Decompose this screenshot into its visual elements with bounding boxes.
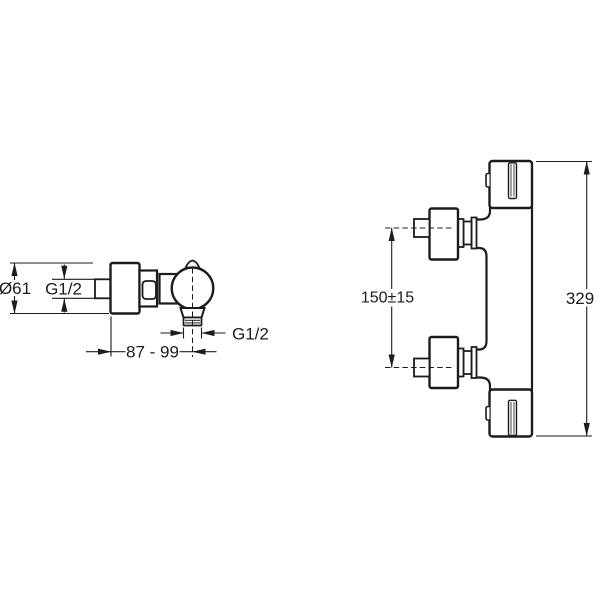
side-wall-escutcheon — [111, 263, 140, 314]
side-union-nut — [143, 281, 157, 299]
side-view: Ø61 G1/2 G1/2 87 - 99 — [0, 261, 269, 362]
front-top-grip-slot — [509, 163, 517, 199]
overall-height-label: 329 — [566, 289, 594, 308]
lower-union-neck — [464, 351, 472, 374]
inlet-spacing-label: 150±15 — [361, 290, 414, 307]
wall-distance-label: 87 - 99 — [126, 343, 179, 362]
front-view: 150±15 329 — [361, 161, 594, 437]
diameter-label: Ø61 — [0, 279, 31, 298]
lower-wall-escutcheon — [430, 337, 459, 388]
upper-wall-escutcheon — [430, 209, 459, 260]
front-bottom-grip-button — [486, 407, 490, 421]
front-top-grip-button — [486, 174, 490, 188]
outlet-thread-label: G1/2 — [232, 324, 269, 343]
technical-drawing-page: Ø61 G1/2 G1/2 87 - 99 — [0, 0, 600, 600]
inlet-thread-label: G1/2 — [45, 279, 82, 298]
side-inlet-stub — [95, 279, 111, 298]
front-body-junction-bottom — [477, 378, 491, 391]
upper-union-neck — [464, 222, 472, 245]
mixer-dimension-drawing: Ø61 G1/2 G1/2 87 - 99 — [0, 0, 600, 600]
front-bottom-grip-slot — [509, 400, 517, 435]
front-body-left-edge — [477, 248, 487, 350]
front-body-junction-top — [477, 207, 491, 220]
